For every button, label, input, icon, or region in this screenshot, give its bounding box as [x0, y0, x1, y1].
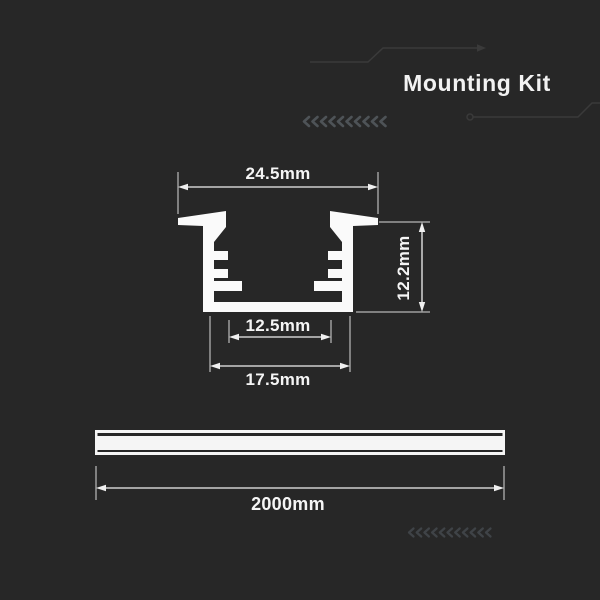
dimension-height	[356, 222, 430, 312]
circuit-line-right-icon	[467, 103, 600, 120]
profile-cross-section	[178, 211, 378, 312]
height-label: 12.2mm	[394, 218, 414, 318]
page-title: Mounting Kit	[377, 70, 577, 97]
circuit-line-top-icon	[310, 44, 486, 62]
chevron-row-top-icon	[304, 117, 386, 126]
inner-width-label: 12.5mm	[228, 316, 328, 336]
length-label: 2000mm	[188, 494, 388, 515]
profile-length-view	[95, 430, 505, 455]
chevron-row-bottom-icon	[409, 529, 491, 537]
mounting-kit-spec-page: Mounting Kit 24.5mm 12.2mm 12.5mm 17.5mm…	[0, 0, 600, 600]
top-width-label: 24.5mm	[178, 164, 378, 184]
bottom-width-label: 17.5mm	[228, 370, 328, 390]
